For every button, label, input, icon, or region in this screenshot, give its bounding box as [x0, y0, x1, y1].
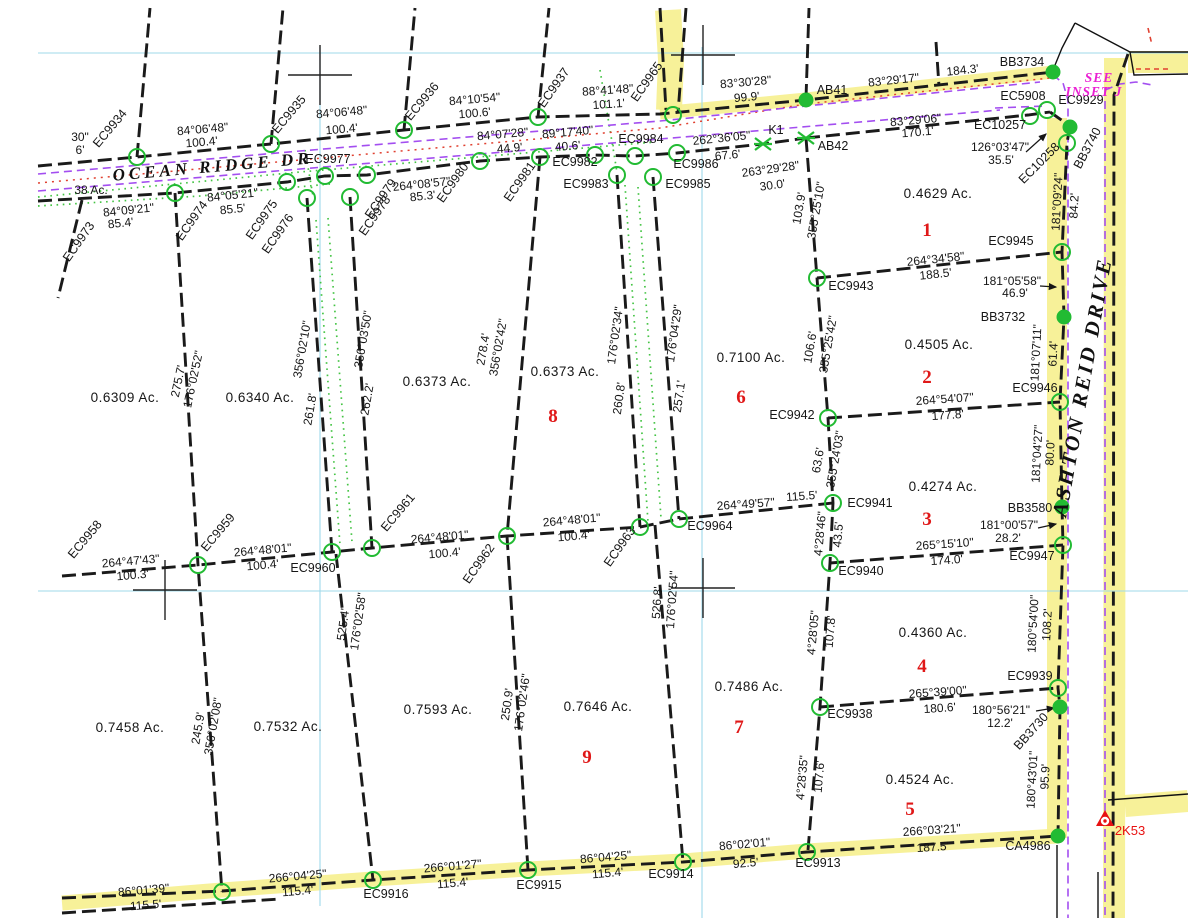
monument-AB41[interactable]: [799, 93, 813, 107]
monument-label-EC9960: EC9960: [290, 561, 335, 575]
bearing-label: 176°02'34": [604, 306, 626, 365]
monument-filled-dot-icon[interactable]: [799, 93, 813, 107]
edge-partial-label: 38 Ac.: [74, 183, 107, 197]
monument-label-BB3580: BB3580: [1008, 501, 1053, 515]
monument-label-BB3734: BB3734: [1000, 55, 1045, 69]
distance-label: 177.8': [931, 407, 964, 423]
edge-partial-label: 30": [71, 130, 89, 144]
monument-label-EC9959: EC9959: [198, 511, 238, 555]
bearing-label: 264°48'01": [410, 528, 469, 547]
bearing-label: 176°04'29": [663, 304, 685, 363]
easement-dotted-line: [328, 218, 352, 542]
monument-label-EC5908: EC5908: [1000, 89, 1045, 103]
parcel-acreage: 0.6340 Ac.: [226, 390, 295, 405]
distance-label: 115.4': [281, 883, 314, 900]
lot-acreage: 0.4505 Ac.: [905, 337, 974, 352]
distance-label: 85.4': [107, 215, 134, 232]
street-label: OCEAN RIDGE DR: [112, 148, 313, 184]
monument-label-2K53: 2K53: [1115, 823, 1145, 838]
bearing-label: 355°25'10": [804, 180, 828, 240]
lot-acreage: 0.7646 Ac.: [564, 699, 633, 714]
lot-acreage: 0.7486 Ac.: [715, 679, 784, 694]
monument-BB3730[interactable]: [1053, 700, 1067, 714]
distance-label: 107.8': [822, 615, 839, 648]
distance-label: 35.5': [988, 153, 1014, 167]
distance-label: 261.8': [300, 392, 319, 426]
distance-label: 85.5': [219, 201, 246, 218]
inset-note-line2: INSET J: [1065, 84, 1123, 99]
monument-label-EC9984: EC9984: [618, 132, 663, 146]
bearing-label: 4°28'05": [804, 610, 822, 656]
monument-label-EC9934: EC9934: [90, 107, 130, 151]
parcel-acreage: 0.7532 Ac.: [254, 719, 323, 734]
monument-label-AB41: AB41: [817, 83, 848, 97]
monument-label-EC9982: EC9982: [552, 155, 597, 169]
bearing-label: 176°02'54": [663, 570, 681, 629]
monument-label-EC9943: EC9943: [828, 279, 873, 293]
distance-label: 188.5': [919, 265, 953, 282]
bearing-label: 4°28'46": [811, 511, 829, 557]
monument-label-EC9961: EC9961: [378, 491, 418, 535]
distance-label: 61.4': [1045, 341, 1060, 367]
monument-label-EC9946: EC9946: [1012, 381, 1057, 395]
monument-label-EC9938: EC9938: [827, 707, 872, 721]
monument-label-EC9964: EC9964: [687, 519, 732, 533]
lot-number-8[interactable]: 8: [548, 406, 558, 427]
distance-label: 103.9': [789, 191, 808, 225]
distance-label: 115.5': [786, 488, 818, 504]
monument-label-EC9963: EC9963: [601, 524, 638, 569]
bearing-label: 180°54'00": [1024, 594, 1041, 653]
monument-filled-dot-icon[interactable]: [1057, 310, 1071, 324]
monument-filled-dot-icon[interactable]: [1046, 65, 1060, 79]
lot-acreage: 0.7100 Ac.: [717, 350, 786, 365]
parcel-boundary: [806, 8, 809, 98]
monument-filled-dot-icon[interactable]: [1063, 120, 1077, 134]
bearing-label: 84°06'48": [315, 103, 367, 121]
lot-acreage: 0.4360 Ac.: [899, 625, 968, 640]
distance-label: 106.6': [800, 330, 819, 364]
monument-label-EC9940: EC9940: [838, 564, 883, 578]
monument-label-EC9981: EC9981: [501, 159, 538, 204]
bearing-label: 355°24'03": [823, 429, 847, 489]
road-edge: [1075, 23, 1130, 52]
monument-label-EC9958: EC9958: [65, 518, 105, 562]
monument-K1[interactable]: [754, 138, 772, 150]
road-highlight: [1114, 58, 1115, 918]
lot-number-2[interactable]: 2: [922, 367, 932, 388]
centerline-layer: [38, 75, 1152, 918]
monument-label-EC9914: EC9914: [648, 867, 693, 881]
distance-label: 67.6': [714, 147, 741, 164]
distance-label: 46.9': [1002, 286, 1028, 300]
distance-label: 63.6': [809, 446, 827, 474]
monument-filled-dot-icon[interactable]: [1051, 829, 1065, 843]
monument-label-BB3732: BB3732: [981, 310, 1026, 324]
distance-label: 187.5': [916, 839, 949, 855]
monument-BB3734[interactable]: [1046, 65, 1060, 79]
monument-label-BB3740: BB3740: [1071, 125, 1104, 171]
parcel-acreage: 0.6373 Ac.: [403, 374, 472, 389]
distance-label: 100.6': [458, 105, 491, 122]
monument-label-K1: K1: [768, 123, 783, 137]
distance-label: 30.0': [759, 176, 786, 193]
distance-label: 99.9': [733, 89, 760, 105]
distance-label: 44.9': [496, 140, 523, 156]
distance-label: 100.3': [116, 567, 149, 584]
parcel-acreage: 0.6309 Ac.: [91, 390, 160, 405]
distance-label: 115.4': [591, 865, 624, 882]
lot-number-5[interactable]: 5: [905, 799, 915, 820]
bearing-label: 264°48'01": [542, 511, 601, 530]
monument-label-EC9945: EC9945: [988, 234, 1033, 248]
distance-label: 100.4': [428, 545, 461, 562]
lot-number-4[interactable]: 4: [917, 656, 927, 677]
monument-label-EC9973: EC9973: [60, 219, 97, 264]
distance-label: 100.4': [246, 557, 279, 574]
monument-label-AB42: AB42: [818, 139, 849, 153]
monument-label-EC9974: EC9974: [173, 198, 210, 243]
parcel-boundary: [507, 157, 540, 536]
monument-label-EC9941: EC9941: [847, 496, 892, 510]
road-highlight: [668, 10, 671, 110]
inset-note-line1: SEE: [1085, 70, 1114, 85]
distance-label: 174.0': [930, 552, 963, 568]
bearing-label: 265°39'00": [908, 683, 967, 701]
monument-label-EC10257: EC10257: [974, 118, 1026, 132]
distance-label: 85.3': [409, 188, 436, 205]
distance-label: 28.2': [995, 531, 1021, 545]
distance-label: 262.2': [357, 382, 376, 416]
lot-number-3[interactable]: 3: [922, 509, 932, 530]
monument-label-EC9942: EC9942: [769, 408, 814, 422]
parcel-acreage: 0.7593 Ac.: [404, 702, 473, 717]
bearing-label: 264°54'07": [915, 390, 974, 408]
lot-number-1[interactable]: 1: [922, 220, 932, 241]
control-point-center-icon: [1103, 819, 1106, 822]
monument-label-EC9986: EC9986: [673, 157, 718, 171]
distance-label: 12.2': [987, 716, 1013, 730]
monument-label-EC9985: EC9985: [665, 177, 710, 191]
distance-label: 43.5': [830, 521, 846, 548]
bearing-label: 263°29'28": [741, 158, 800, 180]
distance-label: 40.6': [554, 138, 581, 154]
monument-EC9929[interactable]: [1039, 102, 1055, 118]
edge-partial-label: 6': [76, 143, 85, 157]
bearing-label: 180°56'21": [972, 703, 1030, 717]
distance-label: 257.1': [670, 379, 688, 413]
parcel-boundary: [137, 8, 150, 157]
monument-label-EC9947: EC9947: [1009, 549, 1054, 563]
bearing-label: 126°03'47": [971, 140, 1029, 154]
bearing-label: 181°00'57": [980, 518, 1038, 532]
distance-label: 92.5': [732, 855, 759, 871]
distance-label: 526.8': [649, 586, 665, 619]
monument-label-EC9983: EC9983: [563, 177, 608, 191]
monument-label-EC9962: EC9962: [460, 541, 497, 586]
parcel-boundary: [617, 175, 640, 527]
distance-label: 101.1': [592, 96, 625, 112]
lot-number-7[interactable]: 7: [734, 717, 744, 738]
monument-label-EC9913: EC9913: [795, 856, 840, 870]
distance-label: 84.2': [1066, 193, 1081, 219]
distance-label: 108.2': [1039, 608, 1055, 641]
parcel-acreage: 0.7458 Ac.: [96, 720, 165, 735]
parcel-boundary: [350, 197, 372, 548]
bearing-label: 356°02'10": [290, 319, 314, 379]
plat-map[interactable]: EC9934EC9935EC9936EC9937EC9965EC9974EC99…: [0, 0, 1188, 918]
distance-label: 100.4': [557, 528, 590, 545]
distance-label: 170.1': [901, 124, 934, 141]
lot-acreage: 0.4274 Ac.: [909, 479, 978, 494]
monument-label-EC9939: EC9939: [1007, 669, 1052, 683]
bearing-label: 83°30'28": [719, 73, 771, 91]
monument-filled-dot-icon[interactable]: [1053, 700, 1067, 714]
monument-label-EC9915: EC9915: [516, 878, 561, 892]
lot-number-6[interactable]: 6: [736, 387, 746, 408]
labels-layer: EC9934EC9935EC9936EC9937EC9965EC9974EC99…: [60, 55, 1145, 913]
monument-BB3732[interactable]: [1057, 310, 1071, 324]
survey-red-dash: [1148, 28, 1152, 45]
distance-label: 95.9': [1037, 764, 1052, 790]
road-edge: [1053, 23, 1075, 70]
bearing-label: 356°03'50": [351, 309, 375, 369]
monument-CA4986[interactable]: [1051, 829, 1065, 843]
distance-label: 107.6': [811, 760, 828, 793]
distance-label: 80.0': [1042, 440, 1057, 466]
easement-dotted-line: [625, 185, 648, 522]
monument-BB3740[interactable]: [1063, 120, 1077, 134]
road-highlight: [1125, 801, 1188, 806]
lot-acreage: 0.4524 Ac.: [886, 772, 955, 787]
distance-label: 260.8': [610, 381, 628, 415]
lot-acreage: 0.4629 Ac.: [904, 186, 973, 201]
distance-label: 100.4': [325, 121, 358, 138]
easement-dotted-line: [638, 187, 661, 518]
monument-label-EC9916: EC9916: [363, 887, 408, 901]
distance-label: 115.4': [436, 875, 469, 892]
bearing-label: 265°15'10": [915, 535, 974, 553]
plat-map-stage: EC9934EC9935EC9936EC9937EC9965EC9974EC99…: [0, 0, 1188, 918]
distance-label: 115.5': [129, 897, 162, 914]
lot-acreage: 0.6373 Ac.: [531, 364, 600, 379]
lot-number-9[interactable]: 9: [582, 747, 592, 768]
monument-open-circle-icon[interactable]: [1039, 102, 1055, 118]
bearing-label: 4°28'35": [793, 755, 811, 801]
distance-label: 100.4': [185, 134, 218, 151]
distance-label: 180.6': [923, 700, 956, 716]
monument-label-CA4986: CA4986: [1005, 839, 1050, 853]
bearing-label: 181°07'11": [1028, 324, 1045, 382]
